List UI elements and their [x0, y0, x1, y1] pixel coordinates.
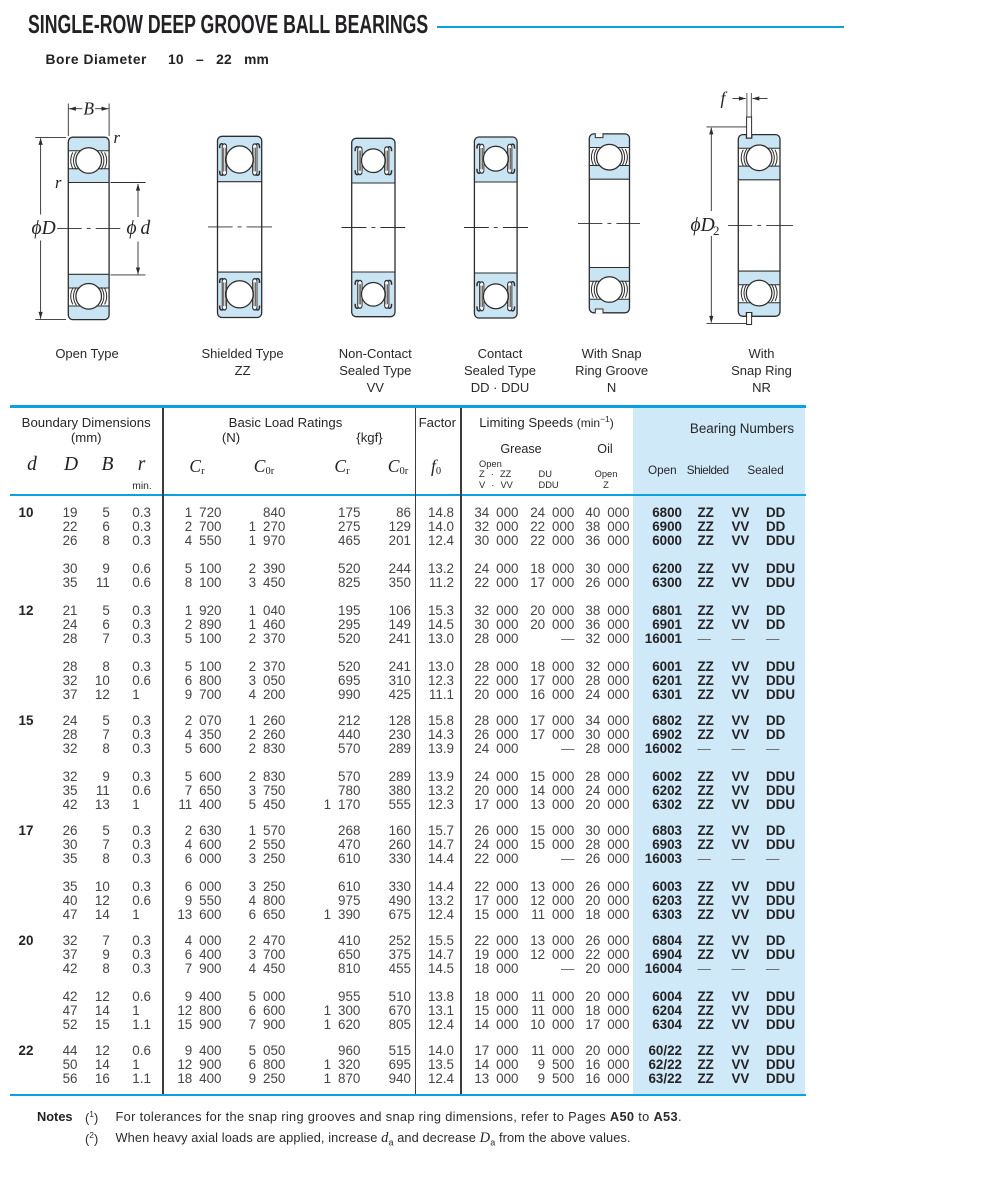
svg-text:r: r	[55, 173, 62, 192]
svg-text:2: 2	[713, 223, 720, 238]
svg-text:r: r	[114, 128, 121, 147]
svg-text:ϕ d: ϕ d	[127, 218, 151, 239]
svg-text:f: f	[721, 88, 728, 108]
svg-text:B: B	[83, 99, 94, 119]
svg-text:ϕD: ϕD	[691, 215, 715, 236]
svg-text:ϕD: ϕD	[32, 218, 56, 239]
